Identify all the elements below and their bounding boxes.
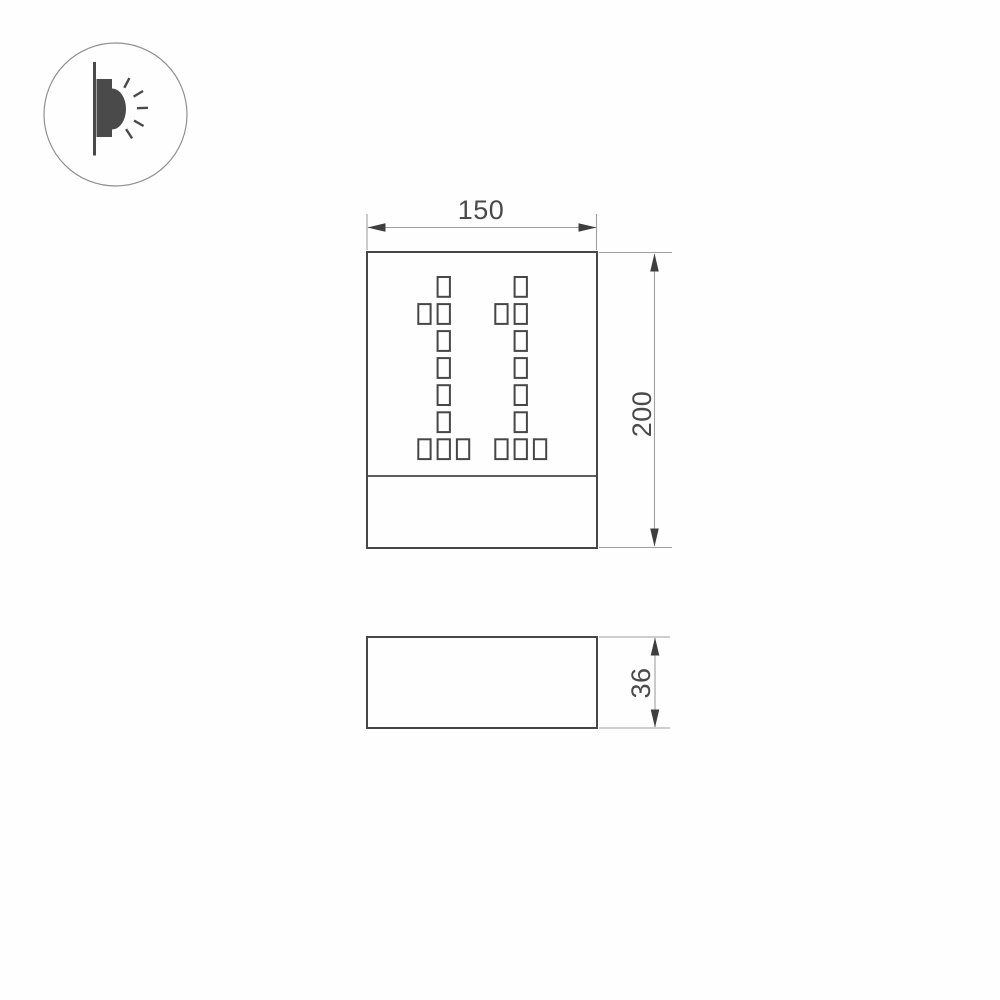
- perforation-hole: [515, 331, 527, 351]
- perforation-hole: [438, 385, 450, 405]
- width-dimension: 150: [367, 195, 597, 250]
- dim-arrow-up-icon: [650, 254, 659, 272]
- front-view: [367, 252, 597, 548]
- drawing-svg: 150 200 36: [0, 0, 1000, 1000]
- perforation-hole: [515, 385, 527, 405]
- side-view-outline: [367, 637, 597, 728]
- icon-light-rays: [124, 78, 148, 138]
- light-ray-icon: [124, 78, 129, 88]
- perforation-pattern: [418, 277, 546, 459]
- height-dim-label: 200: [627, 391, 657, 438]
- perforation-hole: [438, 277, 450, 297]
- perforation-hole: [515, 304, 527, 324]
- dim-arrow-right-icon: [579, 223, 597, 232]
- dim-arrow-down-icon: [651, 710, 660, 728]
- perforation-hole: [418, 304, 430, 324]
- perforation-hole: [438, 358, 450, 378]
- wall-light-icon: [44, 43, 187, 186]
- side-view: [367, 637, 597, 728]
- light-ray-icon: [134, 121, 144, 126]
- perforation-hole: [438, 439, 450, 459]
- perforation-hole: [438, 331, 450, 351]
- perforation-hole: [438, 304, 450, 324]
- perforation-hole: [534, 439, 546, 459]
- depth-dimension: 36: [599, 637, 670, 728]
- perforation-hole: [495, 304, 507, 324]
- light-ray-icon: [134, 91, 143, 97]
- perforation-hole: [515, 439, 527, 459]
- icon-lamp-dome: [112, 89, 126, 130]
- dim-arrow-up-icon: [651, 638, 660, 656]
- dim-arrow-down-icon: [650, 529, 659, 547]
- perforation-hole: [515, 358, 527, 378]
- dim-arrow-left-icon: [368, 223, 386, 232]
- perforation-hole: [515, 412, 527, 432]
- width-dim-label: 150: [458, 195, 505, 225]
- icon-lamp-body: [97, 79, 113, 137]
- perforation-hole: [457, 439, 469, 459]
- depth-dim-label: 36: [626, 667, 656, 698]
- product-dimension-drawing: 150 200 36: [0, 0, 1000, 1000]
- perforation-hole: [515, 277, 527, 297]
- front-view-outline: [367, 252, 597, 548]
- height-dimension: 200: [599, 253, 672, 548]
- perforation-hole: [438, 412, 450, 432]
- perforation-hole: [495, 439, 507, 459]
- perforation-hole: [418, 439, 430, 459]
- light-ray-icon: [126, 129, 132, 138]
